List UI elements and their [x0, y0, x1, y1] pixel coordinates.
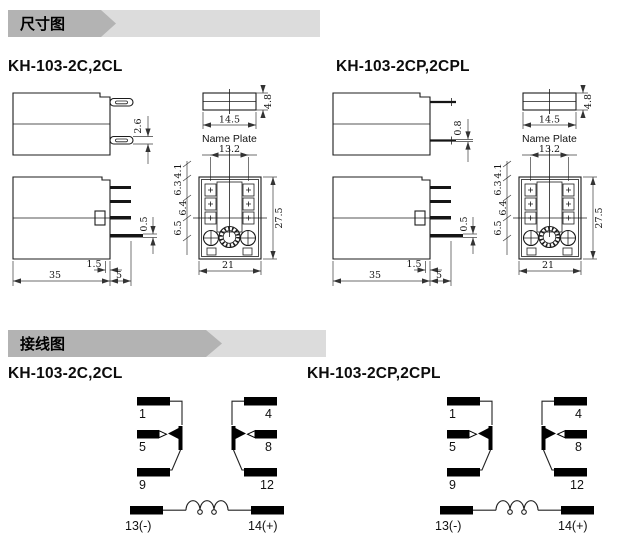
terminal-label-12: 12 [570, 478, 584, 492]
dim-body-width: 35 [49, 270, 61, 281]
dim-nameplate-height: 4.8 [583, 94, 594, 109]
terminal-label-1: 1 [449, 407, 456, 421]
terminal-label-14: 14(+) [248, 519, 278, 533]
dim-pitch-1: 4.1 [493, 163, 504, 178]
dimension-banner-label: 尺寸图 [20, 13, 65, 34]
terminal-label-13: 13(-) [125, 519, 151, 533]
datasheet-page: 尺寸图 KH-103-2C,2CL KH-103-2CP,2CPL 2.6 [0, 0, 619, 546]
terminal-label-4: 4 [575, 407, 582, 421]
wiring-section-banner: 接线图 [8, 330, 326, 357]
dim-pitch-1: 4.1 [173, 163, 184, 178]
terminal-label-8: 8 [575, 440, 582, 454]
dim-pin-offset: 1.5 [86, 259, 101, 270]
dim-pitch-3: 6.4 [178, 200, 189, 215]
model-title-2cp-dimensions: KH-103-2CP,2CPL [336, 58, 470, 76]
dim-pitch-2: 6.3 [173, 180, 184, 195]
pole-left: 1 5 9 [447, 397, 493, 492]
dim-socket-width: 21 [222, 260, 234, 271]
terminal-label-9: 9 [139, 478, 146, 492]
wiring-banner-label: 接线图 [20, 333, 65, 354]
dim-pin-length: 5 [436, 270, 442, 281]
side-view: 0.8 [333, 93, 473, 162]
dim-pitch-2: 6.3 [493, 180, 504, 195]
pole-right: 4 8 12 [232, 397, 278, 492]
dim-pin-length: 5 [116, 270, 122, 281]
terminal-label-9: 9 [449, 478, 456, 492]
socket-bottom-view: 13.2 [513, 144, 605, 275]
wiring-diagram-2cp: 1 5 9 4 8 12 13(-) [422, 388, 612, 546]
model-title-2c-dimensions: KH-103-2C,2CL [8, 58, 123, 76]
dimension-section-banner: 尺寸图 [8, 10, 320, 37]
pitch-dimensions: 4.1 6.3 6.4 6.5 [493, 161, 511, 255]
dim-socket-height: 27.5 [594, 207, 605, 228]
terminal-label-4: 4 [265, 407, 272, 421]
terminal-label-5: 5 [449, 440, 456, 454]
side-view: 2.6 [13, 93, 153, 164]
dim-pitch-3: 6.4 [498, 200, 509, 215]
pitch-dimensions: 4.1 6.3 6.4 6.5 [173, 161, 191, 255]
coil: 13(-) 14(+) [125, 501, 284, 533]
banner-dark-ribbon: 接线图 [8, 330, 224, 357]
name-plate: 4.8 14.5 Name Plate [202, 86, 274, 145]
dim-nameplate-width: 14.5 [539, 115, 560, 126]
socket-bottom-view: 13.2 [193, 144, 285, 275]
front-view: 0.5 1.5 35 5 [333, 177, 477, 286]
dimension-drawing-2c: 2.6 0.5 1.5 35 5 [5, 85, 294, 303]
banner-light-ribbon [98, 10, 320, 37]
dim-pitch-4: 6.5 [173, 220, 184, 235]
pole-right: 4 8 12 [542, 397, 588, 492]
terminal-label-8: 8 [265, 440, 272, 454]
terminal-label-13: 13(-) [435, 519, 461, 533]
dim-pin-offset: 1.5 [406, 259, 421, 270]
dim-nameplate-height: 4.8 [263, 94, 274, 109]
dim-socket-width: 21 [542, 260, 554, 271]
name-plate: 4.8 14.5 Name Plate [522, 86, 594, 145]
dim-pin-width: 2.6 [133, 118, 144, 133]
terminal-label-1: 1 [139, 407, 146, 421]
dim-nameplate-width: 14.5 [219, 115, 240, 126]
dim-pin-thickness: 0.5 [459, 216, 470, 231]
dim-pitch-4: 6.5 [493, 220, 504, 235]
dim-socket-height: 27.5 [274, 207, 285, 228]
coil: 13(-) 14(+) [435, 501, 594, 533]
terminal-label-5: 5 [139, 440, 146, 454]
model-title-2c-wiring: KH-103-2C,2CL [8, 365, 123, 383]
terminal-label-12: 12 [260, 478, 274, 492]
pole-left: 1 5 9 [137, 397, 183, 492]
front-view: 0.5 1.5 35 5 [13, 177, 157, 286]
dim-pin-thickness: 0.5 [139, 216, 150, 231]
wiring-diagram-2c: 1 5 9 4 8 12 13(-) [112, 388, 302, 546]
terminal-label-14: 14(+) [558, 519, 588, 533]
banner-dark-ribbon: 尺寸图 [8, 10, 118, 37]
model-title-2cp-wiring: KH-103-2CP,2CPL [307, 365, 441, 383]
dim-body-width: 35 [369, 270, 381, 281]
dim-pin-width: 0.8 [453, 120, 464, 135]
dimension-drawing-2cp: 0.8 0.5 1.5 35 5 [325, 85, 614, 303]
